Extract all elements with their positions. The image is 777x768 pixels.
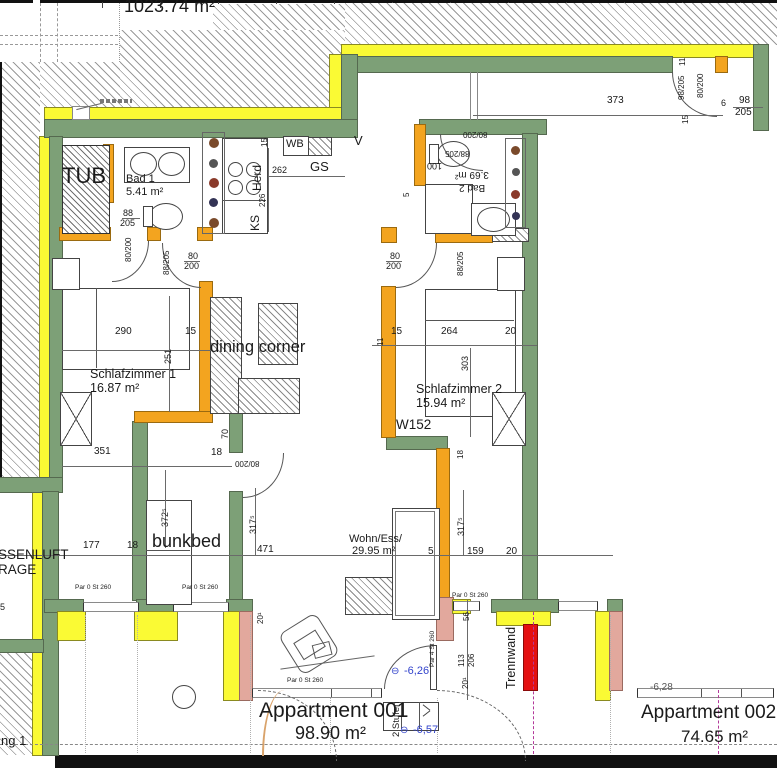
dim-5-win: 5 — [428, 547, 434, 557]
dim-5-left: 5 — [0, 603, 5, 612]
dim-20-1-left: 20¹ — [257, 612, 265, 624]
dim-18-v: 18 — [457, 450, 465, 459]
dim-373: 373 — [607, 96, 624, 106]
dim-11-top: 11 — [679, 58, 687, 66]
dim-15-kitchen: 15 — [261, 138, 269, 147]
dim-205-right: 205 — [735, 108, 752, 118]
dim-100-bad2: 100 — [427, 161, 442, 170]
dim-159: 159 — [467, 547, 484, 557]
dim-56: 56 — [463, 612, 471, 621]
dim-18-s1: 18 — [211, 448, 222, 458]
dim-303: 303 — [461, 356, 470, 371]
dims-layer: 37398205698/20580/2001511152622268820580… — [0, 0, 777, 768]
dim-door-98-205: 98/205 — [678, 76, 686, 100]
floor-plan: 1023.74 m²TUBBad 15.41 m²WBGSHerdKSV3.69… — [0, 0, 777, 768]
dim-6: 6 — [721, 99, 726, 108]
dim-206: 206 — [468, 654, 476, 667]
dim-251: 251 — [164, 349, 173, 364]
dim-door-80-200-top: 80/200 — [697, 74, 705, 98]
dim-205-bad1: 205 — [120, 219, 135, 228]
dim-80-200-bad2: 80/200 — [463, 130, 487, 138]
dim-18-hall: 18 — [127, 541, 138, 551]
dim-88-205-s1: 88/205 — [163, 251, 171, 275]
dim-200-s1: 200 — [184, 262, 199, 271]
dim-15-s2: 15 — [391, 327, 402, 337]
dim-290: 290 — [115, 327, 132, 337]
dim-471: 471 — [257, 545, 274, 555]
dim-88-205-bad2: 88/205 — [445, 149, 469, 157]
dim-80-200-bad1: 80/200 — [125, 238, 133, 262]
dim-226: 226 — [259, 194, 267, 207]
dim-317-5-left: 317⁵ — [249, 515, 258, 534]
dim-80-200-hall: 80/200 — [235, 459, 259, 467]
dim-15-top: 15 — [682, 115, 690, 124]
dim-372-5: 372⁵ — [161, 508, 170, 527]
dim-11-s2: 11 — [377, 338, 385, 346]
dim-20-s2: 20 — [505, 327, 516, 337]
dim-88-bad1: 88 — [123, 209, 133, 218]
dim-317-5-right: 317⁵ — [457, 517, 466, 536]
dim-113: 113 — [458, 654, 466, 667]
dim-20-1-mid: 20¹ — [462, 677, 470, 689]
dim-5-bad2: 5 — [403, 193, 411, 197]
dim-15-s1: 15 — [185, 327, 196, 337]
dim-200-s2: 200 — [386, 262, 401, 271]
dim-264: 264 — [441, 327, 458, 337]
dim-80-s1: 80 — [188, 252, 198, 261]
dim-80-s2: 80 — [390, 252, 400, 261]
dim-98-right: 98 — [739, 96, 750, 106]
dim-70: 70 — [221, 429, 230, 439]
dim-20-right: 20 — [506, 547, 517, 557]
dim-351: 351 — [94, 447, 111, 457]
dim-262: 262 — [272, 166, 287, 175]
dim-88-205-s2: 88/205 — [457, 252, 465, 276]
dim-177: 177 — [83, 541, 100, 551]
